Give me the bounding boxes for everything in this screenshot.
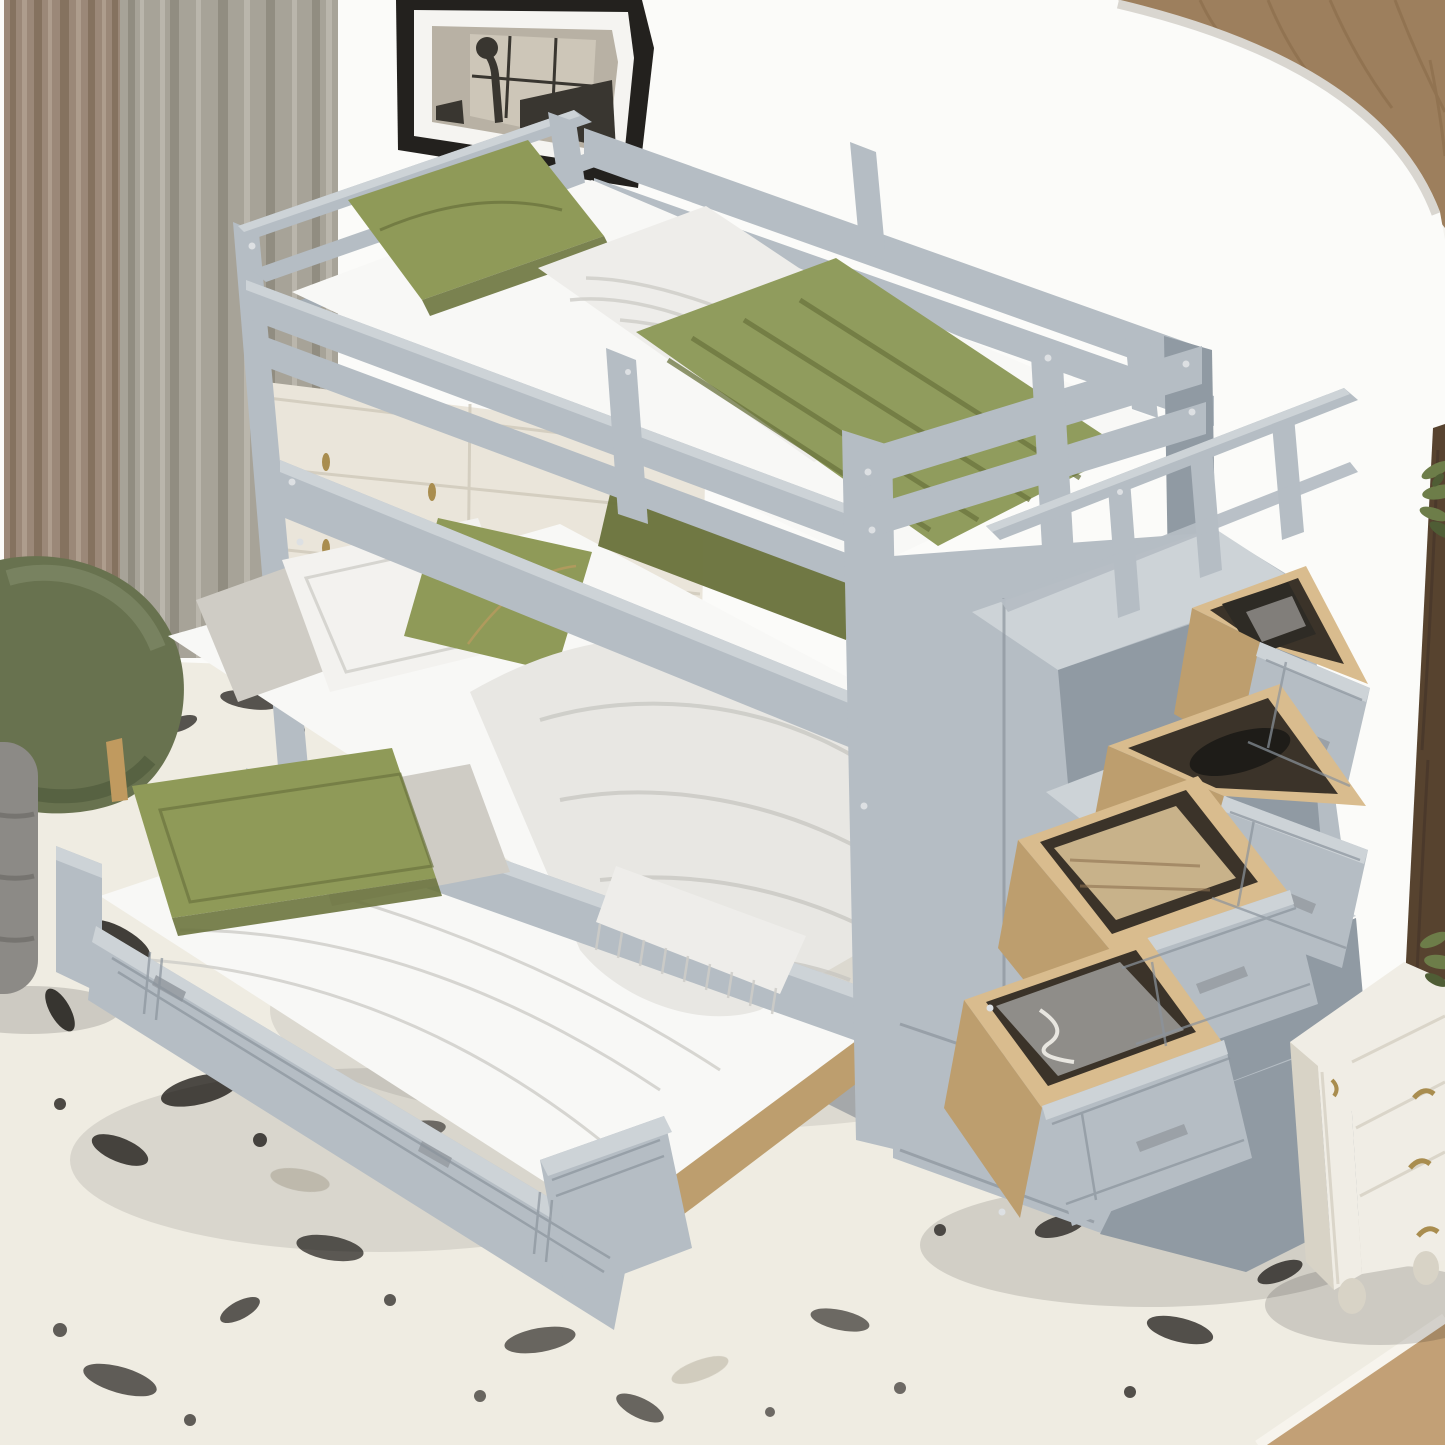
- detail-shape: [140, 0, 144, 658]
- detail-shape: [1413, 1251, 1439, 1285]
- detail-shape: [428, 483, 436, 501]
- detail-shape: [322, 453, 330, 471]
- detail-shape: [54, 1098, 66, 1110]
- detail-shape: [170, 0, 179, 658]
- detail-shape: [289, 479, 296, 486]
- detail-shape: [1183, 361, 1190, 368]
- detail-shape: [625, 369, 631, 375]
- detail-shape: [196, 0, 201, 658]
- detail-shape: [128, 0, 135, 658]
- detail-shape: [765, 1407, 775, 1417]
- detail-shape: [160, 0, 165, 658]
- detail-shape: [1124, 1386, 1136, 1398]
- detail-shape: [987, 1005, 994, 1012]
- detail-shape: [1338, 1278, 1366, 1314]
- detail-shape: [384, 1294, 396, 1306]
- detail-shape: [53, 1323, 67, 1337]
- bedroom-product-photo: [0, 0, 1445, 1445]
- detail-shape: [999, 1209, 1006, 1216]
- detail-shape: [102, 0, 106, 666]
- detail-shape: [869, 527, 876, 534]
- detail-shape: [218, 0, 228, 658]
- detail-shape: [474, 1390, 486, 1402]
- detail-shape: [1189, 409, 1196, 416]
- detail-shape: [861, 803, 868, 810]
- detail-shape: [865, 469, 872, 476]
- detail-shape: [297, 539, 304, 546]
- detail-shape: [894, 1382, 906, 1394]
- nightstand-front-face: [1348, 1002, 1445, 1274]
- ottoman: [0, 742, 38, 994]
- detail-shape: [249, 243, 256, 250]
- ottoman-body: [0, 742, 38, 994]
- detail-shape: [1117, 489, 1123, 495]
- detail-shape: [1045, 355, 1052, 362]
- detail-shape: [112, 0, 118, 666]
- detail-shape: [184, 1414, 196, 1426]
